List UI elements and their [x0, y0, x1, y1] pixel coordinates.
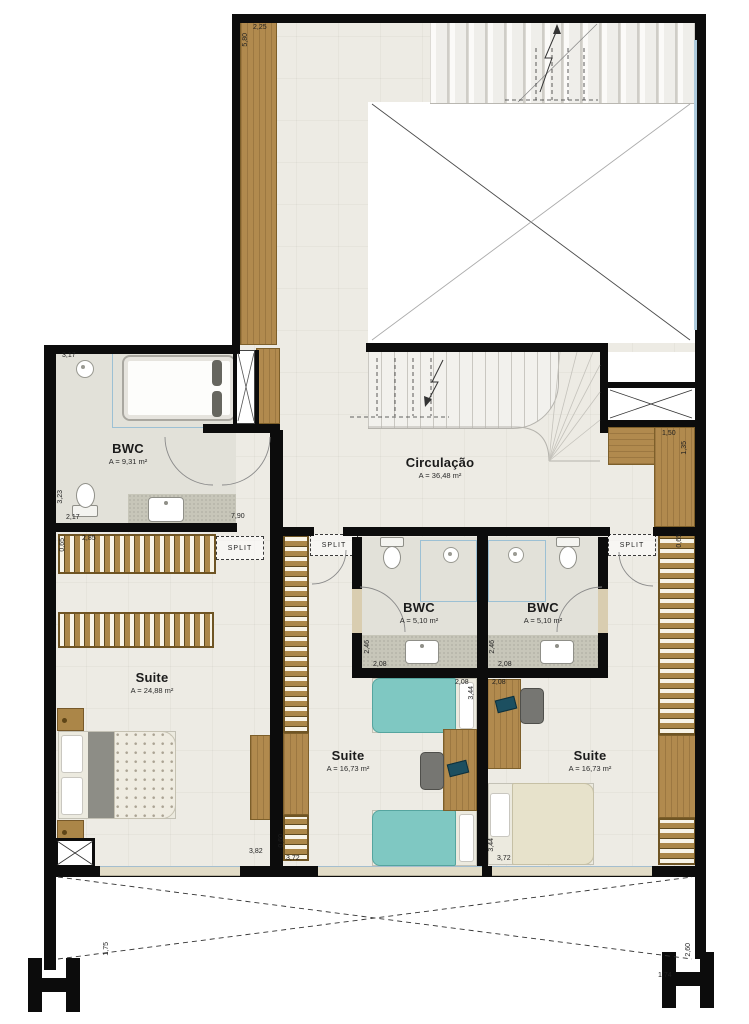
- dim-column-right-h: 1,74: [658, 972, 672, 979]
- bwc-b-toilet-bowl: [559, 546, 577, 569]
- dim-bwc-a-width: 2,08: [373, 661, 387, 668]
- nightstand: [57, 708, 84, 731]
- dim-bwc-b-height: 2,46: [489, 640, 496, 654]
- wardrobe-mid-shelves: [283, 733, 309, 815]
- dim-suite-right-height: 3,44: [488, 838, 495, 852]
- stairs-upper: [430, 23, 695, 104]
- blanket-fold: [88, 732, 114, 818]
- closet-side: [654, 427, 695, 527]
- dresser: [250, 735, 272, 820]
- pillow: [61, 735, 83, 773]
- pillow: [490, 793, 510, 837]
- wardrobe-right-shelves: [658, 735, 696, 818]
- room-area-bwc-left: A = 9,31 m²: [109, 457, 148, 466]
- dim-bwc-b-width: 2,08: [498, 661, 512, 668]
- dim-suite-mid-bed: 2,08: [455, 679, 469, 686]
- wall-divider-right: [477, 527, 488, 875]
- room-label-bwc-b: BWC: [527, 600, 559, 615]
- shaft-box: [608, 388, 695, 420]
- chair: [520, 688, 544, 724]
- desk-right: [487, 679, 521, 769]
- room-label-bwc-left: BWC: [112, 441, 144, 456]
- service-box: [608, 352, 695, 382]
- wall-divider-left: [270, 430, 283, 875]
- pillow: [459, 814, 474, 862]
- bwc-b-sink: [540, 640, 574, 664]
- room-label-suite-right: Suite: [574, 748, 607, 763]
- bwc-a-sink: [405, 640, 439, 664]
- dim-bwc-left-height: 3,23: [57, 490, 64, 504]
- dim-wardrobe-right-depth: 0,65: [676, 534, 683, 548]
- dim-wardrobe-left-width: 2,85: [82, 535, 96, 542]
- split-ac-mid: SPLIT: [310, 534, 358, 556]
- room-label-circulacao: Circulação: [406, 455, 474, 470]
- teal-duvet: [372, 678, 456, 733]
- pillow: [61, 777, 83, 815]
- wall-strip-left: [232, 14, 240, 352]
- wardrobe-right-hangers: [658, 818, 696, 865]
- tub-pillow: [212, 391, 222, 417]
- column-right: [662, 952, 676, 1008]
- dim-bwc-a-height: 2,46: [364, 640, 371, 654]
- shower-head-icon: [508, 547, 524, 563]
- dim-suite-right-top: 2,08: [492, 679, 506, 686]
- wall-stub: [203, 424, 280, 433]
- dim-corridor-width: 2,25: [253, 24, 267, 31]
- dim-corridor-total: 7,90: [231, 513, 245, 520]
- wall-bwcleft-bottom: [44, 523, 237, 532]
- dim-closet-width: 1,50: [662, 430, 676, 437]
- room-area-bwc-b: A = 5,10 m²: [524, 616, 563, 625]
- dim-wardrobe-left-depth: 0,65: [59, 538, 66, 552]
- room-label-suite-left: Suite: [136, 670, 169, 685]
- wardrobe-mid-hangers: [283, 535, 309, 733]
- floral-duvet: [114, 731, 176, 819]
- dim-closet-depth: 1,35: [681, 441, 688, 455]
- teal-duvet: [372, 810, 456, 866]
- window: [318, 866, 482, 876]
- shower-head-icon: [443, 547, 459, 563]
- dim-suite-left-width: 3,82: [249, 848, 263, 855]
- void-double-height: [368, 102, 695, 343]
- bwc-a-toilet-bowl: [383, 546, 401, 569]
- dim-column-left: 1,75: [103, 942, 110, 956]
- wardrobe-left-2: [58, 612, 214, 648]
- room-label-bwc-a: BWC: [403, 600, 435, 615]
- wood-panel-lower: [256, 348, 280, 424]
- shaft: [55, 838, 95, 868]
- exterior: [0, 0, 232, 345]
- room-area-suite-mid: A = 16,73 m²: [327, 764, 370, 773]
- wood-panel-wall: [240, 22, 277, 345]
- door-frame: [352, 589, 362, 633]
- split-ac-right: SPLIT: [608, 534, 656, 556]
- dim-suite-mid-width: 3,72: [286, 855, 300, 862]
- floor-plan: SPLIT SPLIT SPLIT: [0, 0, 749, 1024]
- linen-closet-door: [236, 350, 255, 424]
- room-area-suite-left: A = 24,88 m²: [131, 686, 174, 695]
- room-area-suite-right: A = 16,73 m²: [569, 764, 612, 773]
- bwc-left-sink: [148, 497, 184, 522]
- room-area-bwc-a: A = 5,10 m²: [400, 616, 439, 625]
- shower-head-icon: [76, 360, 94, 378]
- wall-bwc-bottom: [352, 668, 608, 678]
- room-area-circulacao: A = 36,48 m²: [419, 471, 462, 480]
- dim-column-right-v: 2,60: [685, 943, 692, 957]
- dim-bwc-left-top: 3,17: [62, 352, 76, 359]
- wardrobe-right-hangers: [658, 530, 696, 735]
- split-ac-left: SPLIT: [216, 536, 264, 560]
- tub-pillow: [212, 360, 222, 386]
- wall-top: [232, 14, 706, 23]
- bwc-left-toilet-bowl: [76, 483, 95, 508]
- column-left: [28, 958, 42, 1012]
- dim-wardrobe-mid-depth: 0,60: [278, 834, 285, 848]
- dim-corridor-length: 5,80: [242, 33, 249, 47]
- window: [100, 866, 240, 876]
- window: [492, 866, 652, 876]
- door-frame: [598, 589, 608, 633]
- stairs-circulation: [368, 352, 559, 429]
- dim-suite-mid-height: 3,44: [468, 686, 475, 700]
- glass-window: [694, 40, 697, 330]
- room-label-suite-mid: Suite: [332, 748, 365, 763]
- dim-suite-right-width: 3,72: [497, 855, 511, 862]
- dim-bwc-left-vanity: 2,17: [66, 514, 80, 521]
- chair: [420, 752, 444, 790]
- wall-stairs-top: [366, 343, 608, 352]
- beige-duvet: [512, 783, 594, 865]
